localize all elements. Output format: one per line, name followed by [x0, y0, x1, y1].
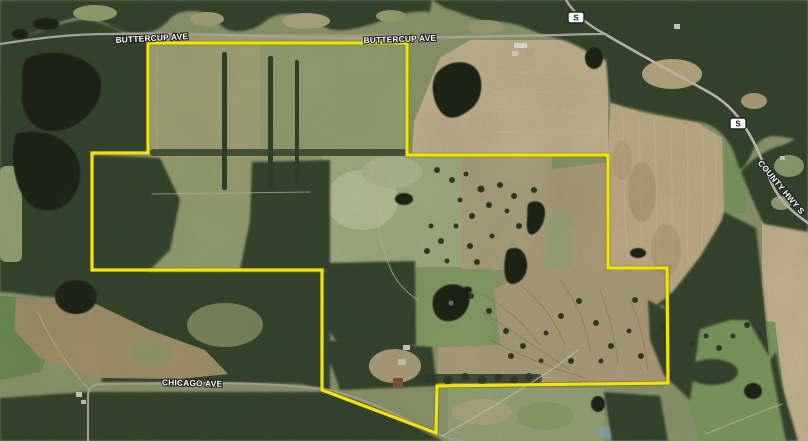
terrain-grain-overlay: [0, 0, 808, 441]
road-label-chicago-ave: CHICAGO AVE: [162, 377, 223, 389]
highway-shield-label: S: [573, 14, 579, 23]
satellite-map-viewport[interactable]: BUTTERCUP AVE BUTTERCUP AVE CHICAGO AVE …: [0, 0, 808, 441]
highway-shield-icon: S: [730, 118, 746, 129]
satellite-map-canvas[interactable]: BUTTERCUP AVE BUTTERCUP AVE CHICAGO AVE …: [0, 0, 808, 441]
highway-shield-label: S: [735, 120, 741, 129]
highway-shield-icon: S: [568, 12, 584, 23]
